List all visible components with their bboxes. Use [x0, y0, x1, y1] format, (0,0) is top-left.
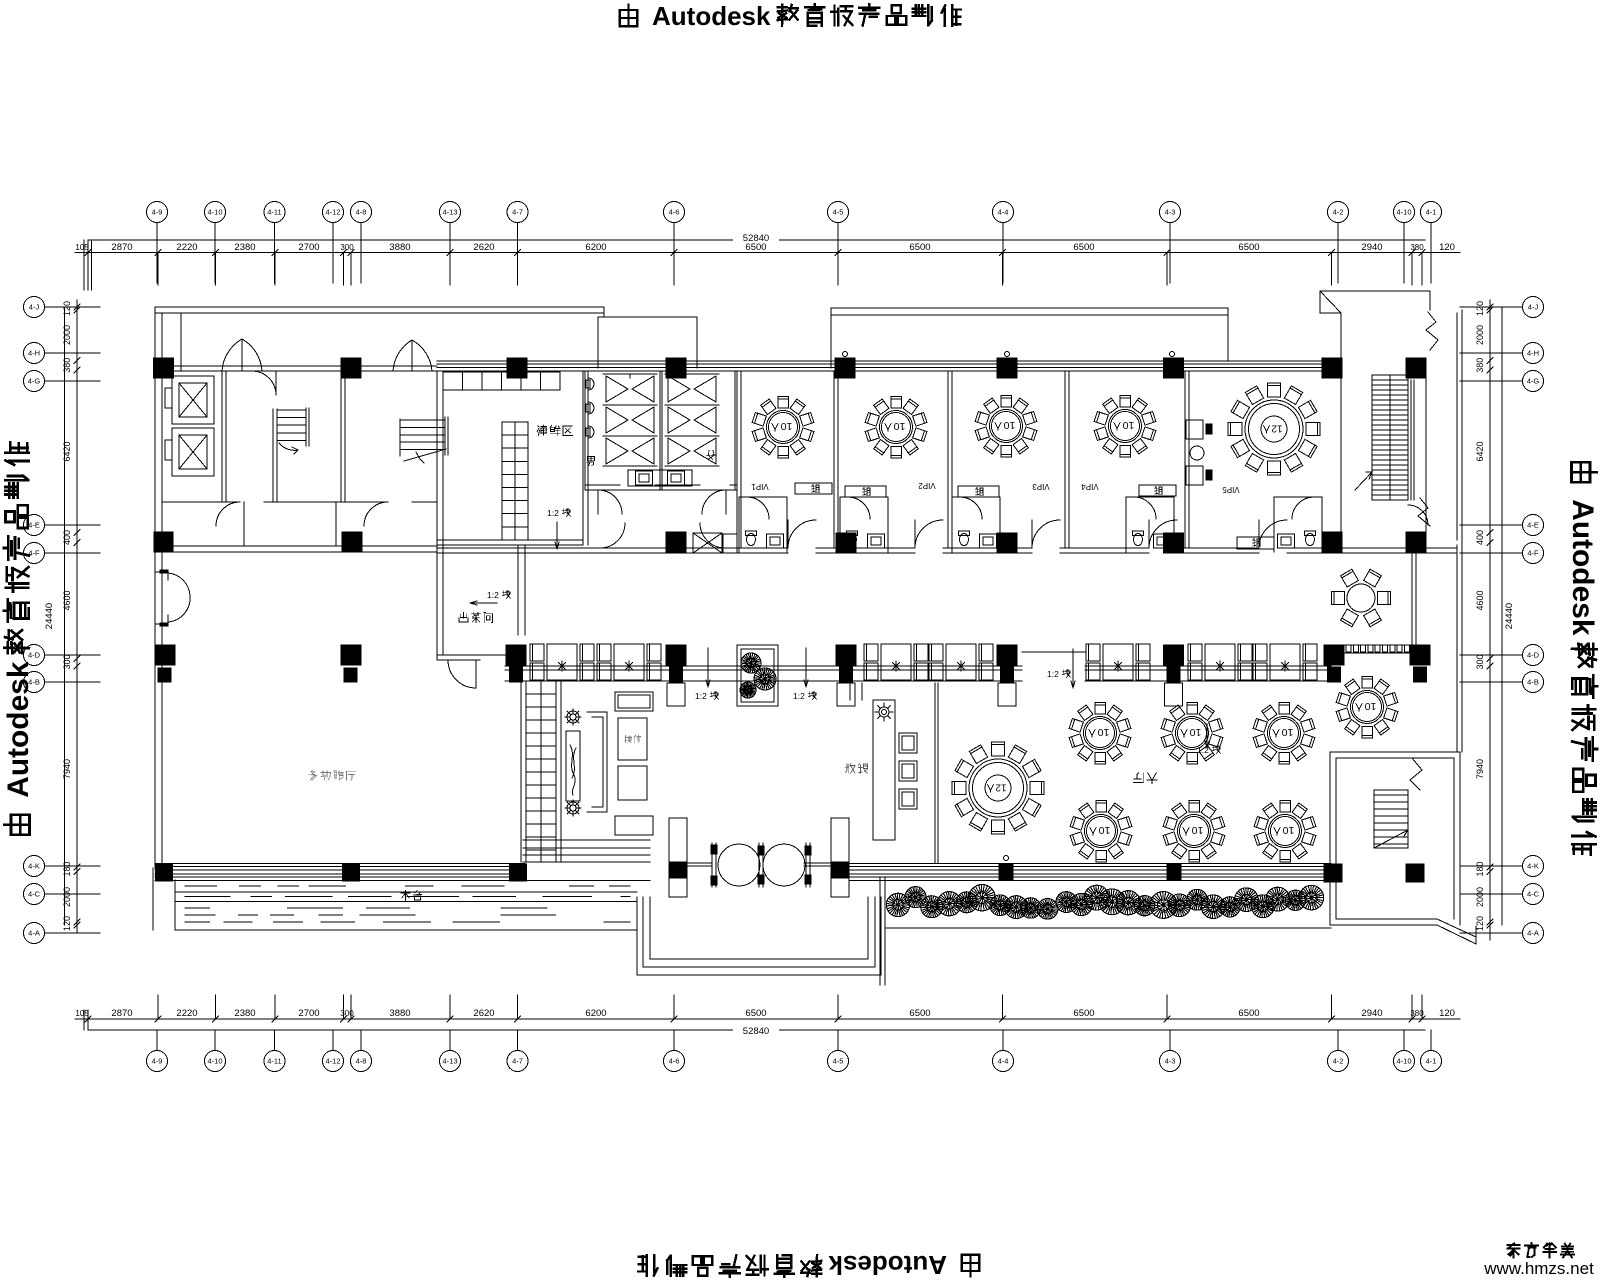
svg-text:12: 12: [1271, 423, 1283, 434]
svg-text:24440: 24440: [1504, 603, 1515, 629]
svg-text:4600: 4600: [62, 590, 72, 610]
svg-text:4600: 4600: [1475, 590, 1485, 610]
svg-text:4-3: 4-3: [1165, 208, 1176, 217]
svg-text:4-3: 4-3: [1165, 1057, 1176, 1066]
svg-text:6500: 6500: [745, 242, 766, 253]
svg-text:Autodesk: Autodesk: [652, 1, 771, 31]
svg-text:4-12: 4-12: [325, 1057, 340, 1066]
svg-text:4-5: 4-5: [833, 208, 844, 217]
svg-text:6500: 6500: [745, 1008, 766, 1019]
svg-text:4-13: 4-13: [442, 1057, 457, 1066]
svg-text:2380: 2380: [234, 242, 255, 253]
svg-text:4-J: 4-J: [29, 303, 40, 312]
svg-text:6420: 6420: [1475, 441, 1485, 461]
svg-text:2700: 2700: [298, 242, 319, 253]
svg-text:4-G: 4-G: [1527, 377, 1540, 386]
svg-text:1:2: 1:2: [793, 691, 805, 701]
svg-text:2620: 2620: [473, 1008, 494, 1019]
svg-text:3880: 3880: [389, 1008, 410, 1019]
svg-text:120: 120: [1439, 242, 1455, 253]
svg-text:2000: 2000: [62, 887, 72, 907]
svg-text:4-12: 4-12: [325, 208, 340, 217]
svg-text:4-1: 4-1: [1426, 208, 1437, 217]
svg-text:4-J: 4-J: [1528, 303, 1539, 312]
svg-text:4-4: 4-4: [998, 1057, 1009, 1066]
svg-text:4-10: 4-10: [1396, 1057, 1411, 1066]
svg-text:VIP2: VIP2: [918, 481, 936, 490]
svg-text:2000: 2000: [1475, 887, 1485, 907]
svg-text:2700: 2700: [298, 1008, 319, 1019]
svg-text:4-K: 4-K: [28, 862, 40, 871]
svg-text:6420: 6420: [62, 441, 72, 461]
svg-text:120: 120: [1439, 1008, 1455, 1019]
svg-text:10: 10: [1099, 824, 1111, 836]
svg-text:VIP4: VIP4: [1081, 482, 1099, 491]
svg-text:12: 12: [995, 782, 1007, 793]
svg-text:380: 380: [62, 358, 72, 373]
svg-text:4-10: 4-10: [207, 1057, 222, 1066]
svg-text:4-A: 4-A: [28, 929, 40, 938]
svg-text:10: 10: [1282, 726, 1294, 738]
svg-text:4-B: 4-B: [28, 678, 40, 687]
svg-text:4-10: 4-10: [207, 208, 222, 217]
svg-text:6500: 6500: [1073, 242, 1094, 253]
svg-text:6200: 6200: [585, 1008, 606, 1019]
svg-text:300: 300: [62, 654, 72, 669]
svg-text:4-D: 4-D: [1527, 651, 1540, 660]
svg-text:4-F: 4-F: [1527, 549, 1539, 558]
svg-text:4-1: 4-1: [1426, 1057, 1437, 1066]
svg-text:4-A: 4-A: [1527, 929, 1539, 938]
svg-text:105: 105: [75, 1009, 89, 1018]
svg-text:300: 300: [340, 1009, 354, 1018]
svg-text:6500: 6500: [1238, 1008, 1259, 1019]
svg-text:1:2: 1:2: [547, 508, 559, 518]
svg-text:2000: 2000: [62, 325, 72, 345]
svg-text:4-E: 4-E: [1527, 521, 1539, 530]
svg-text:10: 10: [1283, 824, 1295, 836]
svg-text:7940: 7940: [1475, 759, 1485, 779]
svg-text:300: 300: [340, 243, 354, 252]
svg-text:www.hmzs.net: www.hmzs.net: [1483, 1259, 1594, 1278]
svg-text:4-8: 4-8: [356, 208, 367, 217]
svg-text:10: 10: [1365, 700, 1377, 712]
svg-text:10: 10: [1123, 419, 1135, 431]
svg-text:6500: 6500: [1073, 1008, 1094, 1019]
svg-text:4-H: 4-H: [1527, 349, 1539, 358]
svg-text:400: 400: [1475, 530, 1485, 545]
svg-text:24440: 24440: [44, 603, 55, 629]
svg-text:4-K: 4-K: [1527, 862, 1539, 871]
svg-text:4-B: 4-B: [1527, 678, 1539, 687]
svg-text:6500: 6500: [1238, 242, 1259, 253]
svg-text:105: 105: [75, 243, 89, 252]
svg-text:300: 300: [1475, 654, 1485, 669]
svg-text:4-E: 4-E: [28, 521, 40, 530]
svg-text:6500: 6500: [909, 242, 930, 253]
svg-text:4-7: 4-7: [512, 208, 523, 217]
svg-text:Autodesk: Autodesk: [828, 1250, 947, 1280]
svg-text:3880: 3880: [389, 242, 410, 253]
svg-text:4-13: 4-13: [442, 208, 457, 217]
svg-text:2380: 2380: [234, 1008, 255, 1019]
svg-text:10: 10: [781, 420, 793, 432]
svg-text:4-2: 4-2: [1333, 1057, 1344, 1066]
svg-text:7940: 7940: [62, 759, 72, 779]
svg-text:1:2: 1:2: [487, 590, 499, 600]
svg-text:4-4: 4-4: [998, 208, 1009, 217]
svg-text:2220: 2220: [176, 1008, 197, 1019]
svg-text:4-6: 4-6: [669, 208, 680, 217]
svg-text:6500: 6500: [909, 1008, 930, 1019]
svg-text:4-6: 4-6: [669, 1057, 680, 1066]
svg-text:180: 180: [62, 861, 72, 876]
svg-text:4-11: 4-11: [267, 208, 281, 217]
svg-text:VIP3: VIP3: [1032, 482, 1050, 491]
svg-text:180: 180: [1475, 861, 1485, 876]
svg-text:4-7: 4-7: [512, 1057, 523, 1066]
svg-text:4-9: 4-9: [152, 208, 163, 217]
svg-text:4-G: 4-G: [28, 377, 41, 386]
svg-text:2940: 2940: [1361, 1008, 1382, 1019]
svg-text:4-2: 4-2: [1333, 208, 1344, 217]
svg-text:4-C: 4-C: [1527, 890, 1540, 899]
svg-text:4-10: 4-10: [1396, 208, 1411, 217]
svg-text:380: 380: [1475, 358, 1485, 373]
svg-text:2870: 2870: [111, 242, 132, 253]
svg-text:2220: 2220: [176, 242, 197, 253]
svg-text:2940: 2940: [1361, 242, 1382, 253]
svg-text:10: 10: [894, 420, 906, 432]
svg-text:4-5: 4-5: [833, 1057, 844, 1066]
svg-text:10: 10: [1004, 419, 1016, 431]
svg-text:120: 120: [62, 916, 72, 931]
svg-text:VIP5: VIP5: [1222, 485, 1240, 494]
svg-text:Autodesk: Autodesk: [1566, 499, 1599, 636]
svg-text:4-8: 4-8: [356, 1057, 367, 1066]
svg-text:4-D: 4-D: [28, 651, 41, 660]
svg-text:6200: 6200: [585, 242, 606, 253]
svg-text:380: 380: [1410, 243, 1424, 252]
svg-text:2620: 2620: [473, 242, 494, 253]
svg-text:1:2: 1:2: [695, 691, 707, 701]
svg-text:10: 10: [1192, 824, 1204, 836]
svg-text:2870: 2870: [111, 1008, 132, 1019]
svg-text:4-11: 4-11: [267, 1057, 281, 1066]
svg-text:52840: 52840: [743, 1026, 769, 1037]
svg-text:4-H: 4-H: [28, 349, 40, 358]
svg-text:120: 120: [62, 301, 72, 316]
svg-text:4-F: 4-F: [28, 549, 40, 558]
svg-text:VIP1: VIP1: [751, 482, 769, 491]
svg-text:120: 120: [1475, 301, 1485, 316]
svg-text:400: 400: [62, 530, 72, 545]
svg-text:4-9: 4-9: [152, 1057, 163, 1066]
svg-text:4-C: 4-C: [28, 890, 41, 899]
svg-text:1:2: 1:2: [1047, 669, 1059, 679]
svg-text:10: 10: [1190, 726, 1202, 738]
svg-text:2000: 2000: [1475, 325, 1485, 345]
svg-text:10: 10: [1098, 726, 1110, 738]
